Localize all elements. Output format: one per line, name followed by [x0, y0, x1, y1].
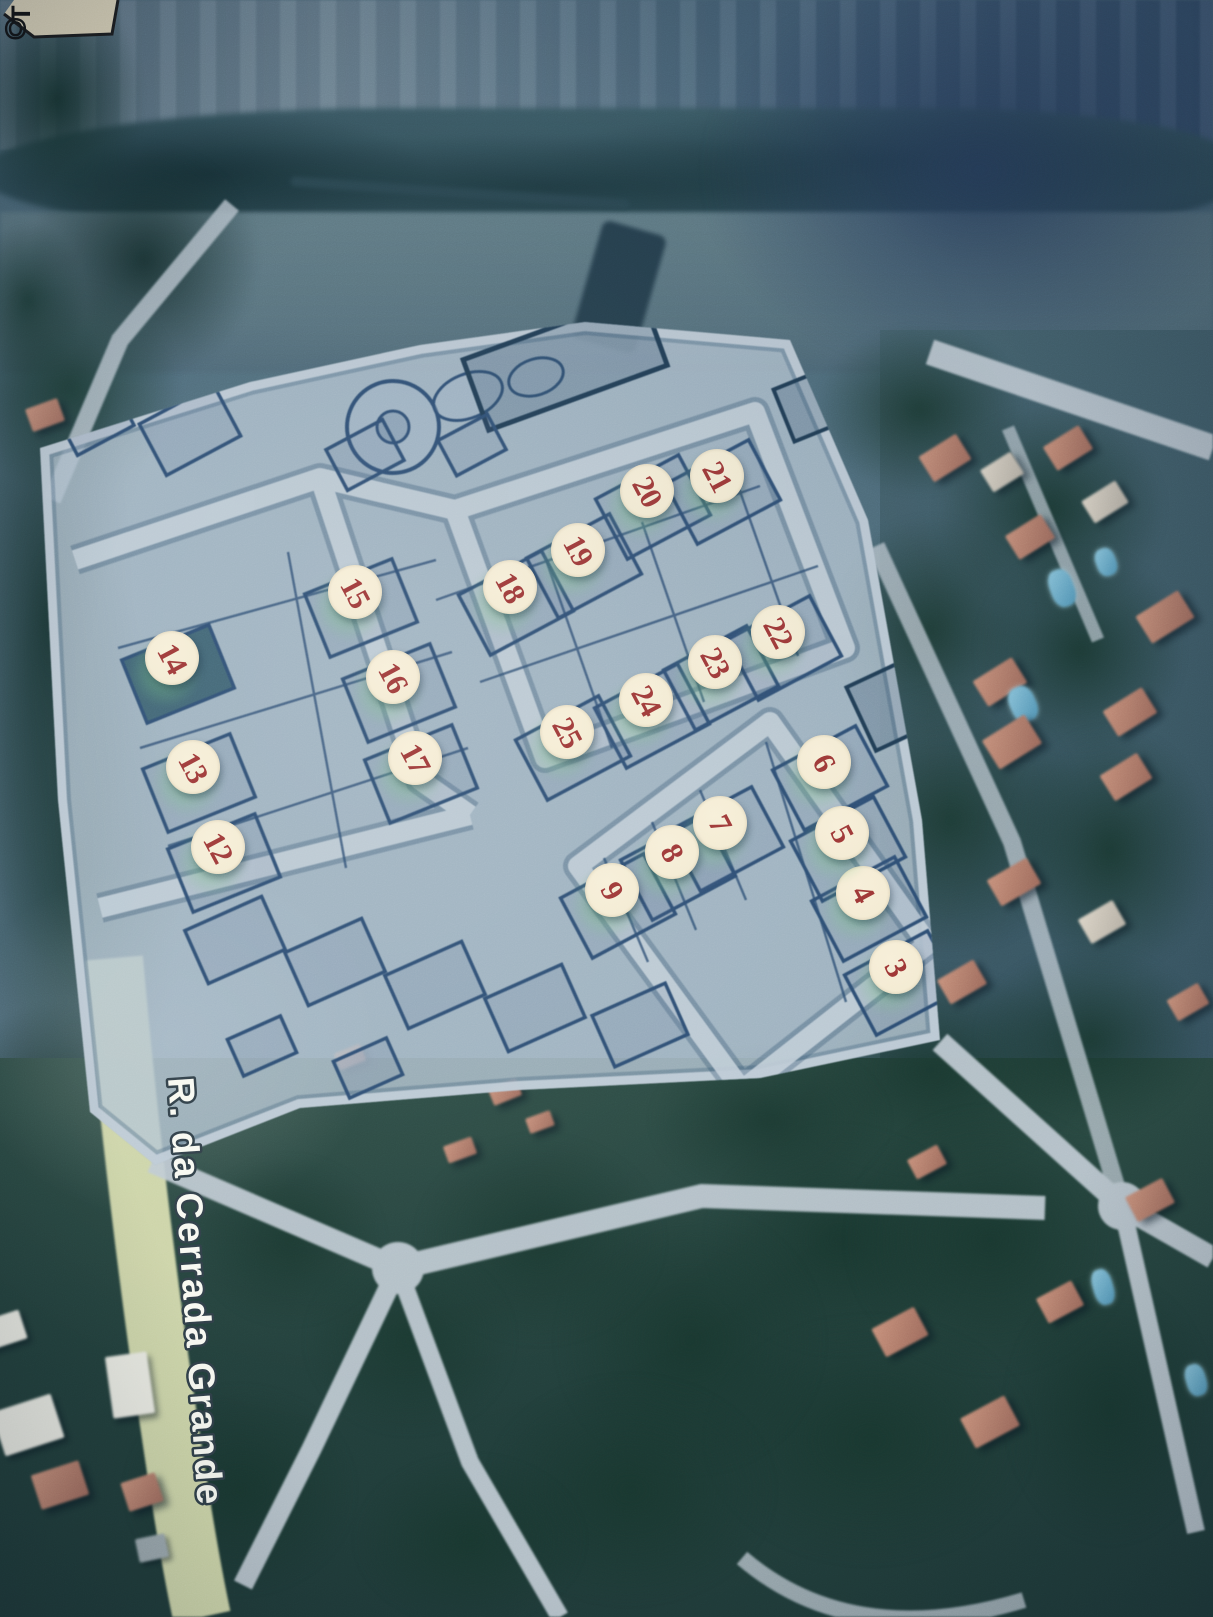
corner-label-bottom: O [5, 14, 26, 44]
street-label-layer: R. da Cerrada Grande [0, 0, 1213, 1617]
street-label: R. da Cerrada Grande [160, 1076, 231, 1508]
printed-aerial-lot-map-photo: 34567891213141516171819202122232425 R. d… [0, 0, 1213, 1617]
sheet-corner: T O [0, 0, 220, 110]
